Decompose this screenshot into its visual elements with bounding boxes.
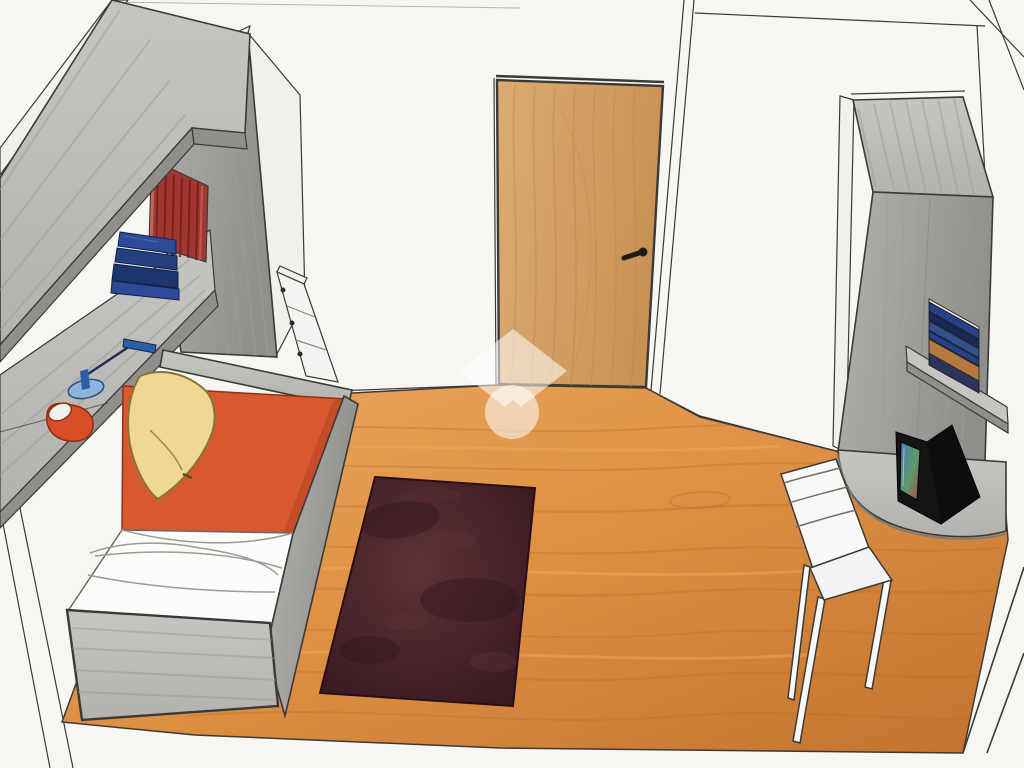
blue-folded-stack	[111, 232, 179, 300]
watermark-circle	[485, 385, 539, 439]
bed-footboard	[67, 610, 278, 720]
scene-canvas	[0, 0, 1024, 768]
room-rendering	[0, 0, 1024, 768]
